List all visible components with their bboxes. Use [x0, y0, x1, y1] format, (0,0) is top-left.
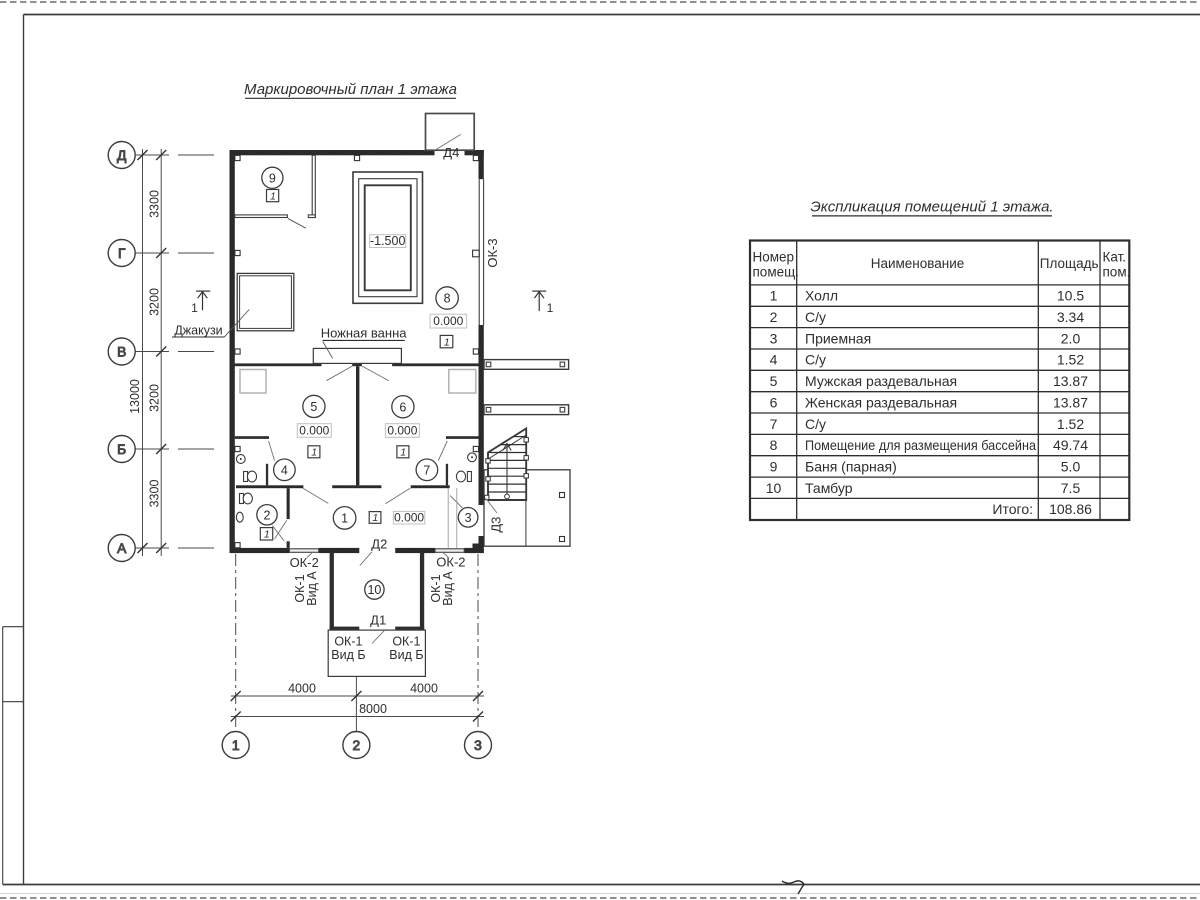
svg-text:1: 1 — [444, 337, 450, 349]
svg-text:8000: 8000 — [359, 702, 387, 716]
svg-text:3: 3 — [465, 511, 472, 525]
svg-text:8: 8 — [770, 437, 778, 453]
svg-text:7: 7 — [423, 463, 430, 477]
svg-text:1.52: 1.52 — [1057, 416, 1084, 432]
svg-text:Д1: Д1 — [370, 612, 386, 627]
svg-text:0.000: 0.000 — [299, 423, 329, 437]
svg-text:3300: 3300 — [148, 480, 162, 508]
svg-text:3: 3 — [474, 738, 482, 753]
svg-text:Площадь: Площадь — [1040, 256, 1099, 271]
svg-text:108.86: 108.86 — [1049, 501, 1092, 517]
svg-text:3.34: 3.34 — [1057, 309, 1084, 325]
svg-text:Приемная: Приемная — [805, 330, 871, 346]
svg-text:2: 2 — [353, 738, 361, 753]
svg-text:Маркировочный план 1 этажа: Маркировочный план 1 этажа — [244, 81, 457, 98]
svg-text:ОК-1: ОК-1 — [334, 635, 362, 649]
svg-text:ОК-3: ОК-3 — [485, 238, 500, 267]
svg-text:13.87: 13.87 — [1053, 394, 1088, 410]
svg-text:4000: 4000 — [288, 682, 316, 696]
svg-text:3300: 3300 — [148, 190, 162, 218]
svg-text:0.000: 0.000 — [387, 423, 417, 437]
svg-text:-1.500: -1.500 — [370, 234, 405, 248]
svg-text:2: 2 — [770, 309, 778, 325]
svg-text:1: 1 — [232, 738, 240, 753]
svg-text:0.000: 0.000 — [394, 511, 424, 525]
svg-text:6: 6 — [399, 400, 406, 414]
svg-text:5.0: 5.0 — [1061, 459, 1081, 475]
svg-text:Джакузи: Джакузи — [174, 324, 222, 338]
svg-text:Ножная ванна: Ножная ванна — [321, 325, 408, 340]
svg-text:1: 1 — [400, 447, 406, 459]
svg-text:Экспликация помещений 1 этажа.: Экспликация помещений 1 этажа. — [810, 199, 1053, 216]
svg-text:1: 1 — [770, 288, 778, 304]
svg-text:Кат.: Кат. — [1103, 250, 1127, 265]
svg-text:0.000: 0.000 — [433, 314, 463, 328]
svg-text:Мужская раздевальная: Мужская раздевальная — [805, 373, 957, 389]
svg-text:В: В — [117, 345, 126, 360]
svg-text:6: 6 — [770, 394, 778, 410]
svg-text:Итого:: Итого: — [992, 501, 1033, 517]
svg-text:7: 7 — [770, 416, 778, 432]
svg-text:А: А — [117, 541, 127, 556]
svg-text:5: 5 — [310, 400, 317, 414]
svg-text:Женская раздевальная: Женская раздевальная — [805, 394, 957, 410]
svg-text:Вид А: Вид А — [441, 571, 455, 606]
svg-text:1: 1 — [311, 447, 317, 459]
svg-text:1: 1 — [270, 191, 276, 203]
svg-text:Наименование: Наименование — [871, 256, 965, 271]
svg-text:Помещение для размещения бассе: Помещение для размещения бассейна — [805, 437, 1036, 453]
svg-text:2: 2 — [264, 508, 271, 522]
svg-text:10: 10 — [766, 480, 782, 496]
svg-text:пом.: пом. — [1103, 265, 1131, 280]
svg-text:ОК-2: ОК-2 — [290, 555, 319, 570]
svg-text:Д2: Д2 — [371, 536, 387, 551]
svg-text:10.5: 10.5 — [1057, 288, 1084, 304]
svg-text:3200: 3200 — [148, 288, 162, 316]
svg-text:Номер: Номер — [753, 250, 795, 265]
svg-text:Вид А: Вид А — [305, 571, 319, 606]
svg-text:1: 1 — [372, 512, 378, 524]
svg-text:С/у: С/у — [805, 309, 826, 325]
svg-text:Г: Г — [118, 246, 126, 261]
svg-text:7.5: 7.5 — [1061, 480, 1081, 496]
svg-text:1: 1 — [264, 529, 270, 541]
svg-text:Тамбур: Тамбур — [805, 480, 853, 496]
svg-text:3200: 3200 — [148, 384, 162, 412]
svg-text:3: 3 — [770, 330, 778, 346]
svg-text:13.87: 13.87 — [1053, 373, 1088, 389]
svg-text:Д: Д — [117, 148, 127, 163]
svg-text:помещ.: помещ. — [753, 265, 799, 280]
svg-text:10: 10 — [367, 583, 381, 597]
svg-text:13000: 13000 — [128, 379, 142, 414]
svg-text:ОК-2: ОК-2 — [436, 555, 465, 570]
svg-text:2.0: 2.0 — [1061, 330, 1081, 346]
svg-text:Д4: Д4 — [443, 145, 459, 160]
svg-text:5: 5 — [770, 373, 778, 389]
svg-text:8: 8 — [444, 292, 451, 306]
svg-text:4: 4 — [770, 352, 778, 368]
svg-text:1: 1 — [191, 301, 198, 315]
svg-text:Д3: Д3 — [489, 517, 504, 533]
svg-text:Вид Б: Вид Б — [389, 648, 423, 662]
svg-text:Б: Б — [117, 442, 126, 457]
svg-text:Баня (парная): Баня (парная) — [805, 459, 897, 475]
svg-text:С/у: С/у — [805, 416, 826, 432]
svg-text:9: 9 — [770, 459, 778, 475]
svg-text:4: 4 — [281, 463, 288, 477]
svg-text:Холл: Холл — [805, 288, 838, 304]
svg-text:ОК-1: ОК-1 — [392, 635, 420, 649]
svg-text:9: 9 — [269, 171, 276, 185]
svg-text:49.74: 49.74 — [1053, 437, 1088, 453]
svg-text:С/у: С/у — [805, 352, 826, 368]
svg-text:4000: 4000 — [410, 682, 438, 696]
svg-text:1: 1 — [547, 301, 554, 315]
svg-text:1: 1 — [341, 512, 348, 526]
svg-text:Вид Б: Вид Б — [331, 648, 365, 662]
svg-text:1.52: 1.52 — [1057, 352, 1084, 368]
